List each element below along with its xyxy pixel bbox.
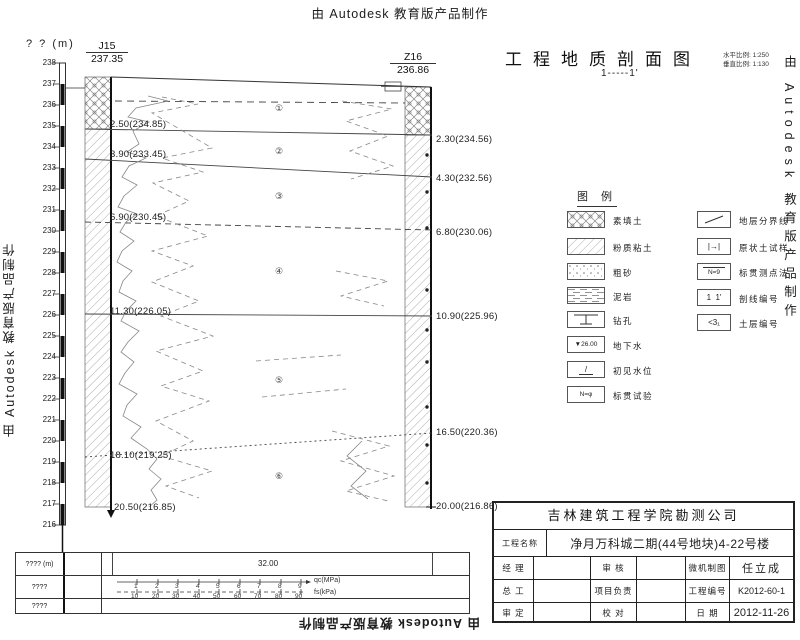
watermark-top: 由 Autodesk 教育版产品制作 xyxy=(0,3,800,22)
borehole-left-elevation: 237.35 xyxy=(91,53,123,65)
fs-tick: 60 xyxy=(234,593,241,600)
spt-point-symbol: N=9 xyxy=(703,267,725,276)
layer-number: ④ xyxy=(275,266,283,277)
axis-tick-label: 220 xyxy=(30,436,56,446)
qc-tick: 9 xyxy=(298,583,302,590)
axis-tick-label: 228 xyxy=(30,268,56,278)
depth-annotation: 18.10(219.25) xyxy=(110,450,172,461)
legend-label: 素填土 xyxy=(613,215,643,227)
legend-swatch-spt-point: N=9 xyxy=(697,263,731,280)
table-row-label: ???? (m) xyxy=(16,553,65,575)
legend-swatch-fill-soil xyxy=(567,211,605,228)
borehole-right-elevation: 236.86 xyxy=(397,64,429,76)
hole-spacing-value: 32.00 xyxy=(258,559,278,568)
axis-tick-label: 223 xyxy=(30,373,56,383)
legend-swatch-silty-clay xyxy=(567,238,605,255)
titleblock-value xyxy=(637,603,686,623)
legend-label: 地层分界线 xyxy=(739,215,789,227)
axis-tick-label: 222 xyxy=(30,394,56,404)
titleblock-value xyxy=(534,603,591,623)
groundwater-symbol: ▼26.00 xyxy=(575,341,598,348)
bottom-data-table: ???? (m) 32.00 ???? ???? xyxy=(15,552,470,614)
titleblock-label: 项目负责 xyxy=(591,580,637,603)
legend-title: 图 例 xyxy=(577,188,617,207)
legend-label: 原状土试样 xyxy=(739,242,789,254)
axis-tick-label: 221 xyxy=(30,415,56,425)
fs-tick: 10 xyxy=(131,593,138,600)
depth-annotation: 6.90(230.45) xyxy=(110,212,166,223)
spt-symbol: N=φ xyxy=(580,391,593,398)
depth-annotation: 16.50(220.36) xyxy=(436,427,498,438)
legend-label: 剖线编号 xyxy=(739,293,779,305)
axis-tick-label: 226 xyxy=(30,310,56,320)
cad-drawing-canvas: 由 Autodesk 教育版产品制作 由 Autodesk 教育版产品制作 由 … xyxy=(0,0,800,640)
titleblock-label: 总 工 xyxy=(494,580,534,603)
titleblock-value xyxy=(534,557,591,580)
axis-tick-label: 224 xyxy=(30,352,56,362)
borehole-symbol-icon xyxy=(568,312,604,327)
drafter-name: 任立成 xyxy=(730,557,793,580)
fs-tick: 90 xyxy=(295,593,302,600)
fs-tick: 30 xyxy=(172,593,179,600)
depth-annotation: 3.90(233.45) xyxy=(110,149,166,160)
titleblock-label: 校 对 xyxy=(591,603,637,623)
watermark-bottom: 由 Autodesk 教育版产品制作 xyxy=(282,615,496,634)
project-name: 净月万科城二期(44号地块)4-22号楼 xyxy=(547,530,793,556)
water-level-symbol: / xyxy=(579,365,593,375)
layer-number: ⑤ xyxy=(275,375,283,386)
fs-tick: 70 xyxy=(254,593,261,600)
axis-tick-label: 225 xyxy=(30,331,56,341)
company-name: 吉林建筑工程学院勘测公司 xyxy=(494,503,793,530)
project-name-label: 工程名称 xyxy=(494,530,547,556)
legend-swatch-layer-number: <3₁ xyxy=(697,314,731,331)
axis-tick-label: 230 xyxy=(30,226,56,236)
axis-tick-label: 234 xyxy=(30,142,56,152)
section-number-symbol: 1 1' xyxy=(707,293,722,302)
legend-label: 初见水位 xyxy=(613,365,653,377)
borehole-left-id: J15 xyxy=(86,40,128,53)
axis-tick-label: 232 xyxy=(30,184,56,194)
titleblock-label: 审 定 xyxy=(494,603,534,623)
qc-tick: 1 xyxy=(134,583,138,590)
legend-swatch-undisturbed-sample: |→| xyxy=(697,238,731,255)
vertical-scale-note: 垂直比例: 1:130 xyxy=(723,58,769,68)
qc-tick: 7 xyxy=(257,583,261,590)
borehole-right-header: Z16 236.86 xyxy=(390,51,436,76)
legend-swatch-spt-test: N=φ xyxy=(567,386,605,403)
titleblock-label: 工程编号 xyxy=(686,580,730,603)
depth-annotation: 6.80(230.06) xyxy=(436,227,492,238)
axis-tick-label: 227 xyxy=(30,289,56,299)
titleblock-value xyxy=(534,580,591,603)
project-number: K2012-60-1 xyxy=(730,580,793,603)
titleblock-label: 日 期 xyxy=(686,603,730,623)
fs-tick: 80 xyxy=(275,593,282,600)
qc-tick: 6 xyxy=(237,583,241,590)
table-row-label: ???? xyxy=(16,576,65,598)
titleblock-label: 经 理 xyxy=(494,557,534,580)
drawing-date: 2012-11-26 xyxy=(730,603,793,623)
depth-annotation: 4.30(232.56) xyxy=(436,173,492,184)
axis-tick-label: 236 xyxy=(30,100,56,110)
qc-tick: 3 xyxy=(175,583,179,590)
legend-label: 标贯测点法 xyxy=(739,267,789,279)
layer-number-symbol: <3₁ xyxy=(708,318,720,327)
legend-swatch-borehole xyxy=(567,311,605,328)
legend-swatch-groundwater: ▼26.00 xyxy=(567,336,605,353)
axis-tick-label: 231 xyxy=(30,205,56,215)
depth-annotation: 2.50(234.85) xyxy=(110,119,166,130)
axis-tick-label: 229 xyxy=(30,247,56,257)
axis-tick-label: 218 xyxy=(30,478,56,488)
legend-swatch-boundary-line xyxy=(697,211,731,228)
borehole-left-header: J15 237.35 xyxy=(86,40,128,65)
titleblock-label: 审 核 xyxy=(591,557,637,580)
legend-swatch-section-number: 1 1' xyxy=(697,289,731,306)
axis-tick-label: 233 xyxy=(30,163,56,173)
qc-tick: 8 xyxy=(278,583,282,590)
fs-tick: 20 xyxy=(152,593,159,600)
watermark-right: 由 Autodesk 教育版产品制作 xyxy=(780,55,799,425)
layer-number: ① xyxy=(275,103,283,114)
legend-label: 标贯试验 xyxy=(613,390,653,402)
depth-annotation: 20.00(216.86) xyxy=(436,501,498,512)
boundary-line-icon xyxy=(698,212,730,227)
title-block: 吉林建筑工程学院勘测公司 工程名称 净月万科城二期(44号地块)4-22号楼 经… xyxy=(492,501,795,623)
depth-annotation: 10.90(225.96) xyxy=(436,311,498,322)
fs-tick: 40 xyxy=(193,593,200,600)
borehole-right-id: Z16 xyxy=(390,51,436,64)
section-title: 工程地质剖面图 xyxy=(505,45,701,70)
qc-tick: 4 xyxy=(196,583,200,590)
legend-label: 地下水 xyxy=(613,340,643,352)
legend-label: 粉质粘土 xyxy=(613,242,653,254)
titleblock-value xyxy=(637,580,686,603)
titleblock-value xyxy=(637,557,686,580)
qc-tick: 2 xyxy=(155,583,159,590)
axis-tick-label: 219 xyxy=(30,457,56,467)
section-number: 1-----1' xyxy=(601,68,639,79)
legend-swatch-mudstone xyxy=(567,287,605,304)
axis-tick-label: 235 xyxy=(30,121,56,131)
hole-spacing-cell: 32.00 xyxy=(102,553,469,575)
axis-unit-label: ? ? (m) xyxy=(26,38,75,50)
layer-number: ⑥ xyxy=(275,471,283,482)
axis-tick-label: 216 xyxy=(30,520,56,530)
sample-symbol: |→| xyxy=(708,242,720,251)
legend-label: 土层编号 xyxy=(739,318,779,330)
titleblock-label: 微机制图 xyxy=(686,557,730,580)
axis-tick-label: 238 xyxy=(30,58,56,68)
depth-annotation: 20.50(216.85) xyxy=(114,502,176,513)
depth-annotation: 11.30(226.05) xyxy=(110,306,171,317)
fs-axis-label: fs(kPa) xyxy=(314,589,336,596)
legend-label: 钻孔 xyxy=(613,315,633,327)
depth-annotation: 2.30(234.56) xyxy=(436,134,492,145)
legend-swatch-coarse-sand xyxy=(567,263,605,280)
axis-tick-label: 217 xyxy=(30,499,56,509)
legend-swatch-first-water-level: / xyxy=(567,361,605,378)
right-borehole-column xyxy=(405,87,436,509)
axis-tick-label: 237 xyxy=(30,79,56,89)
table-row-label: ???? xyxy=(16,599,65,613)
layer-number: ③ xyxy=(275,191,283,202)
ground-surface-line xyxy=(65,77,431,91)
legend-label: 粗砂 xyxy=(613,267,633,279)
legend-label: 泥岩 xyxy=(613,291,633,303)
qc-axis-label: qc(MPa) xyxy=(314,577,340,584)
watermark-left: 由 Autodesk 教育版产品制作 xyxy=(0,222,19,437)
layer-number: ② xyxy=(275,146,283,157)
qc-tick: 5 xyxy=(216,583,220,590)
fs-tick: 50 xyxy=(213,593,220,600)
